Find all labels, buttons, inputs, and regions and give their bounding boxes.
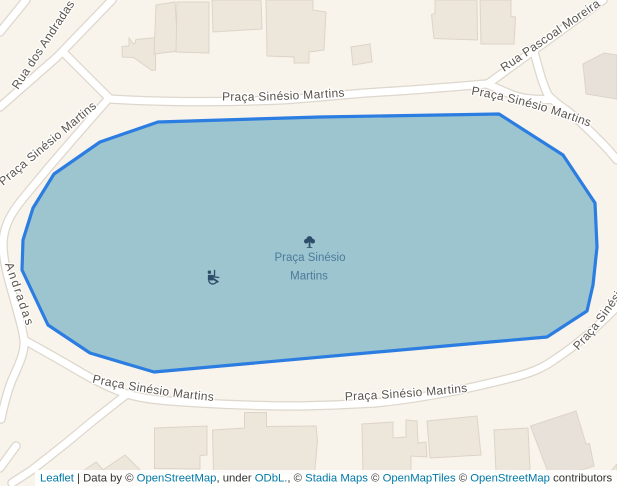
svg-text:Praça Sinésio: Praça Sinésio	[275, 252, 346, 264]
svg-text:Leaflet | Data by © OpenStreet: Leaflet | Data by © OpenStreetMap, under…	[40, 473, 612, 485]
svg-text:Martins: Martins	[290, 271, 328, 283]
